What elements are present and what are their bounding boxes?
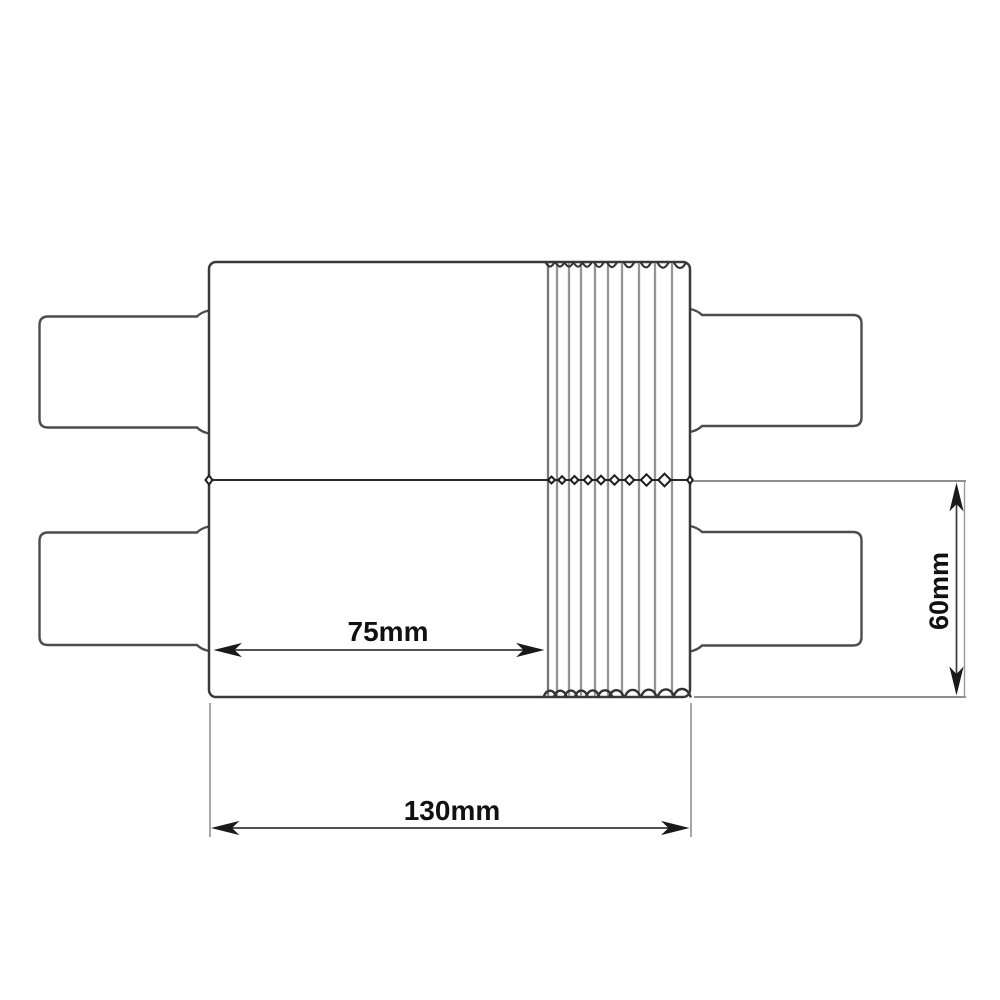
svg-text:60mm: 60mm [924, 552, 954, 630]
svg-text:75mm: 75mm [348, 616, 429, 647]
svg-text:130mm: 130mm [404, 795, 501, 826]
